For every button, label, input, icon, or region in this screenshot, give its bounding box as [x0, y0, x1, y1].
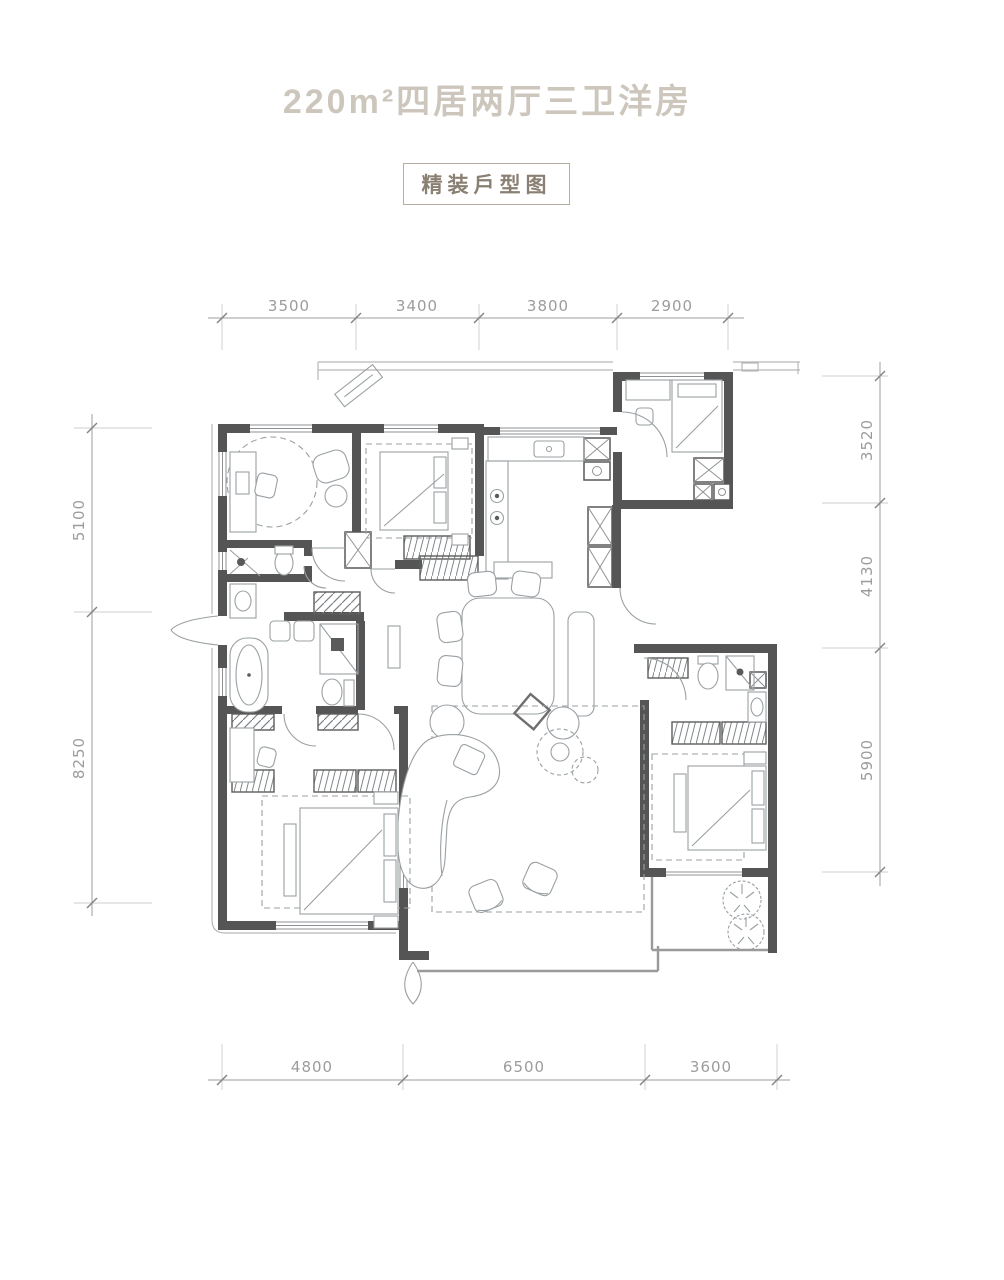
sink-box	[584, 462, 610, 480]
side-table	[430, 705, 464, 739]
dim-right-3: 5900	[858, 739, 876, 781]
toilet-tank	[275, 546, 293, 554]
hall-door	[358, 714, 394, 750]
entry-door	[171, 616, 218, 645]
shaft	[588, 507, 612, 545]
single-bed	[672, 380, 722, 452]
bed-bench	[674, 774, 686, 832]
basin	[270, 621, 290, 641]
floor-plan-drawing: 3500 3400 3800 2900 4800 6500 3600 5100	[0, 0, 1004, 1280]
study-door	[312, 548, 345, 581]
toilet-bowl	[322, 679, 342, 705]
dim-top-3: 3800	[527, 297, 569, 315]
dim-bottom-2: 6500	[503, 1058, 545, 1076]
study-room	[227, 437, 352, 532]
dining-chair	[436, 655, 463, 687]
master-door	[284, 714, 316, 746]
balcony	[723, 881, 764, 950]
floor-plan-page: 220m²四居两厅三卫洋房 精装戶型图	[0, 0, 1004, 1280]
living-room	[398, 705, 644, 915]
toilet-tank	[344, 680, 354, 706]
window	[250, 424, 312, 433]
window	[384, 424, 438, 433]
chair	[256, 746, 277, 769]
dimension-right: 3520 4130 5900	[822, 362, 888, 886]
window	[218, 452, 227, 496]
master-bedroom	[230, 728, 410, 928]
dim-top-2: 3400	[396, 297, 438, 315]
accent-chair	[467, 877, 505, 914]
shower-drain	[237, 558, 245, 566]
washer	[331, 638, 344, 651]
plant	[728, 914, 764, 950]
dining-chair	[510, 570, 541, 598]
dim-left-2: 8250	[70, 737, 88, 779]
master-bed	[300, 808, 398, 914]
dim-left-1: 5100	[70, 499, 88, 541]
bedroom2	[366, 438, 472, 545]
wardrobe	[314, 770, 356, 792]
wardrobe	[648, 658, 688, 678]
fridge-box	[584, 438, 610, 460]
dimension-bottom: 4800 6500 3600	[208, 1044, 790, 1090]
toilet-bowl	[698, 663, 718, 689]
wardrobe	[672, 722, 720, 744]
shower-fold	[230, 550, 260, 576]
bed-bench	[284, 824, 296, 896]
toilet-bowl	[275, 551, 293, 575]
bedroom3	[652, 656, 766, 860]
shaft	[588, 547, 612, 587]
nightstand	[452, 534, 468, 545]
desk-chair	[254, 472, 278, 499]
railings	[417, 872, 768, 971]
side-table	[547, 707, 579, 739]
tall-cabinet	[388, 626, 400, 668]
dim-bottom-3: 3600	[690, 1058, 732, 1076]
shoe-cabinet	[318, 714, 358, 730]
faucet	[547, 447, 552, 452]
dimension-left: 5100 8250	[70, 414, 152, 916]
dining-chair	[436, 610, 464, 643]
coffee-table-small	[572, 757, 598, 783]
cabinet	[626, 380, 670, 400]
bedroom3-bed	[688, 766, 766, 850]
basin	[294, 621, 314, 641]
dim-bottom-1: 4800	[291, 1058, 333, 1076]
study-ottoman	[325, 485, 347, 507]
nightstand	[374, 916, 398, 928]
living-door	[620, 588, 656, 624]
dim-top-4: 2900	[651, 297, 693, 315]
desk	[230, 728, 254, 782]
dining-table	[462, 598, 554, 714]
dim-top-1: 3500	[268, 297, 310, 315]
shower-drain	[737, 669, 744, 676]
bedroom2-bed	[380, 452, 448, 530]
closet-box	[694, 484, 712, 500]
fixture-box	[750, 672, 766, 688]
ac-unit	[335, 365, 383, 407]
column-box	[345, 532, 371, 568]
study-desk	[230, 452, 256, 532]
bedroom2-door	[371, 569, 395, 593]
terrace-door	[405, 962, 422, 1004]
fixture-box	[714, 484, 730, 500]
dimension-top: 3500 3400 3800 2900	[208, 297, 744, 350]
dim-right-2: 4130	[858, 555, 876, 597]
foyer-cabinet	[314, 592, 360, 614]
closet-box	[694, 458, 724, 482]
nightstand	[374, 792, 398, 804]
kitchen	[486, 437, 584, 579]
vanity	[230, 584, 256, 618]
window	[500, 427, 600, 435]
window	[276, 922, 368, 929]
dining-bench	[568, 612, 594, 716]
coffee-table-inner	[551, 743, 569, 761]
nightstand	[452, 438, 468, 449]
dim-right-1: 3520	[858, 419, 876, 461]
plant	[723, 881, 761, 919]
nightstand	[744, 752, 766, 764]
wardrobe	[358, 770, 396, 792]
dining-chair	[467, 571, 497, 598]
window	[218, 552, 227, 570]
kitchen-sink	[534, 441, 564, 457]
dining-area	[436, 562, 594, 729]
master-bathroom	[230, 621, 400, 712]
window	[218, 668, 227, 696]
wardrobe	[722, 722, 766, 744]
accent-chair	[521, 860, 560, 898]
